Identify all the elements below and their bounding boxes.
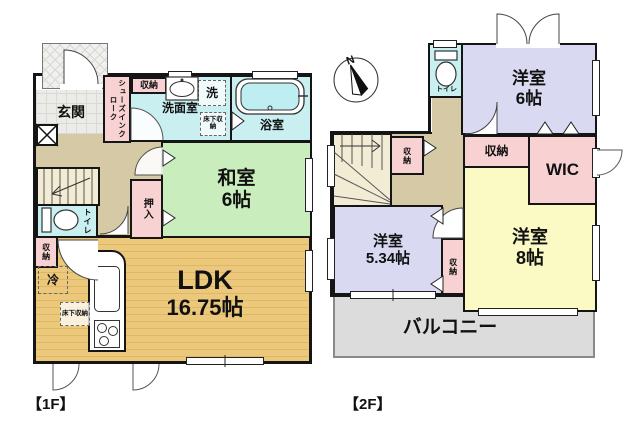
floor-plan-image: LDK 16.75帖 玄関 シューズインクローク 収納 洗面室 洗 床下収納 浴…: [0, 0, 640, 435]
caption-1f: 【1F】: [27, 393, 75, 414]
compass-n-label: N: [345, 54, 357, 68]
compass-icon: N: [334, 54, 378, 102]
floor2-symbols: N: [0, 0, 640, 435]
caption-2f: 【2F】: [344, 393, 392, 414]
